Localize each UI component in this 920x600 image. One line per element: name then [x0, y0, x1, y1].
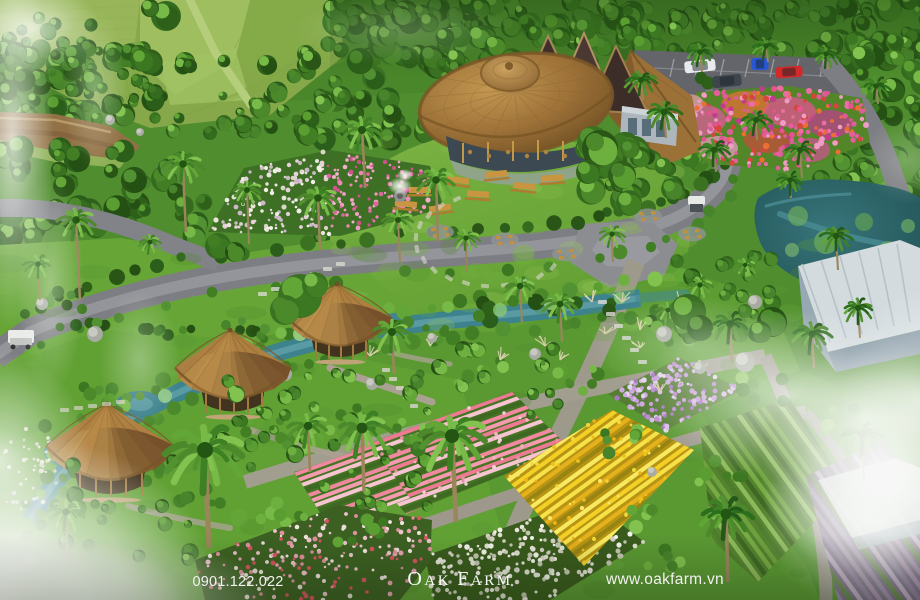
svg-text:0901.122.022: 0901.122.022 [192, 574, 283, 590]
svg-text:www.oakfarm.vn: www.oakfarm.vn [605, 571, 724, 588]
